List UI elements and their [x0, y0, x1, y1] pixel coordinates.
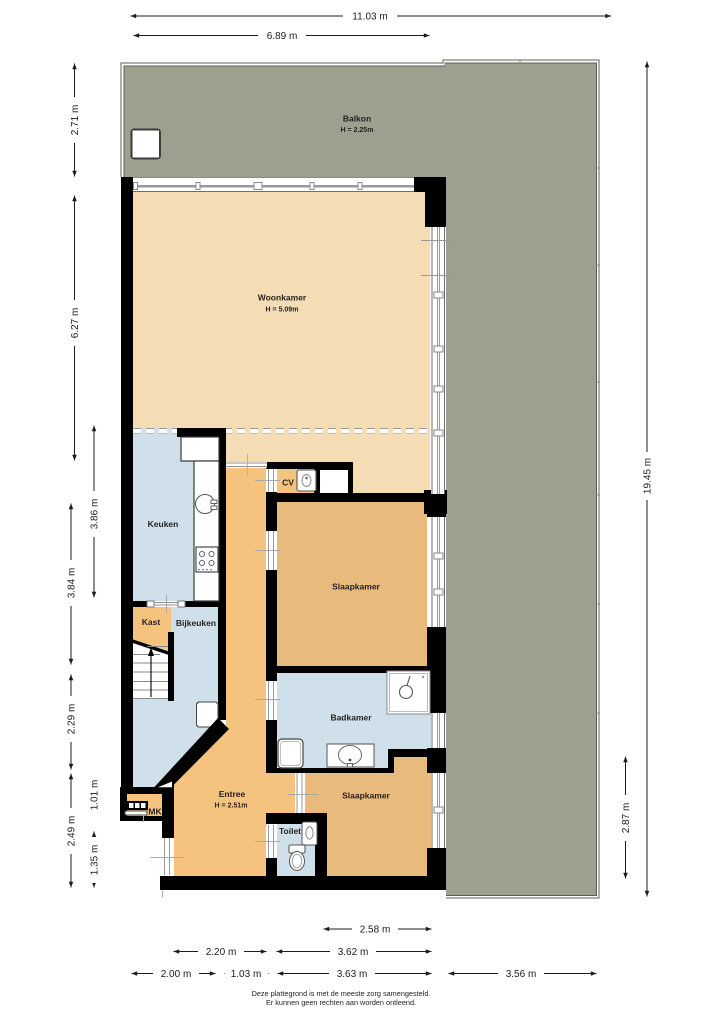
svg-text:2.87 m: 2.87 m [621, 803, 632, 834]
svg-text:3.62 m: 3.62 m [338, 947, 369, 958]
svg-text:Kast: Kast [142, 617, 161, 627]
svg-text:19.45 m: 19.45 m [643, 458, 654, 494]
svg-text:MK: MK [148, 807, 162, 817]
svg-text:2.29 m: 2.29 m [67, 704, 78, 735]
svg-text:3.63 m: 3.63 m [337, 969, 368, 980]
svg-text:2.00 m: 2.00 m [161, 969, 192, 980]
svg-text:1.01 m: 1.01 m [90, 780, 101, 811]
svg-text:Deze plattegrond is met de mee: Deze plattegrond is met de meeste zorg s… [252, 989, 431, 998]
svg-text:2.58 m: 2.58 m [360, 925, 391, 936]
svg-text:Bijkeuken: Bijkeuken [176, 618, 216, 628]
svg-text:Entree: Entree [219, 789, 246, 799]
svg-text:3.84 m: 3.84 m [67, 568, 78, 599]
svg-text:3.56 m: 3.56 m [506, 969, 537, 980]
svg-text:Badkamer: Badkamer [330, 713, 372, 723]
svg-text:2.49 m: 2.49 m [67, 816, 78, 847]
svg-text:Keuken: Keuken [148, 519, 179, 529]
svg-text:1.35 m: 1.35 m [90, 845, 101, 876]
svg-text:H = 2.25m: H = 2.25m [341, 127, 374, 134]
svg-text:1.03 m: 1.03 m [231, 969, 262, 980]
svg-text:Balkon: Balkon [343, 114, 371, 124]
svg-text:6.27 m: 6.27 m [70, 308, 81, 339]
svg-text:Slaapkamer: Slaapkamer [342, 791, 390, 801]
svg-text:3.86 m: 3.86 m [90, 499, 101, 530]
svg-text:H = 5.09m: H = 5.09m [266, 307, 299, 314]
svg-text:Toilet: Toilet [279, 826, 301, 836]
svg-text:Er kunnen geen rechten aan wor: Er kunnen geen rechten aan worden ontlee… [266, 998, 416, 1007]
svg-text:11.03 m: 11.03 m [352, 12, 387, 23]
svg-text:H = 2.51m: H = 2.51m [215, 803, 248, 810]
svg-text:CV: CV [282, 478, 294, 488]
svg-text:2.20 m: 2.20 m [206, 947, 237, 958]
svg-text:6.89 m: 6.89 m [267, 31, 298, 42]
svg-text:Woonkamer: Woonkamer [258, 293, 307, 303]
svg-text:Slaapkamer: Slaapkamer [332, 582, 380, 592]
svg-text:2.71 m: 2.71 m [70, 105, 81, 136]
